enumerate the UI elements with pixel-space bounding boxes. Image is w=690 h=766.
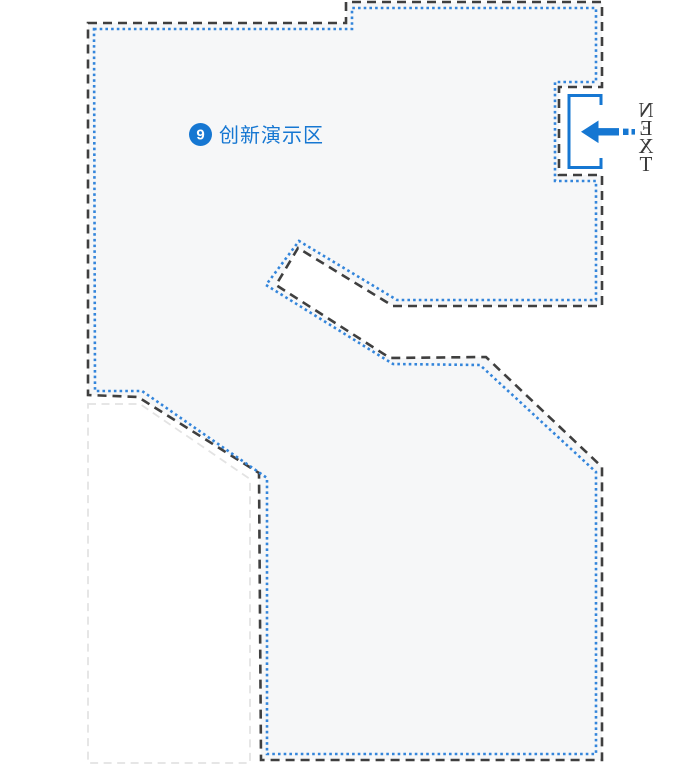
map-canvas: 9 创新演示区 N E X T — [0, 0, 690, 766]
badge-number: 9 — [196, 127, 204, 144]
arrow-tail-dash — [632, 129, 636, 135]
area-label: 创新演示区 — [219, 124, 324, 147]
floor-map: 9 创新演示区 N E X T — [0, 0, 690, 766]
next-letter: T — [639, 152, 652, 176]
next-text: N E X T — [638, 98, 653, 176]
next-arrow-icon — [581, 121, 635, 144]
arrow-tail-dash — [623, 129, 629, 135]
neighbor-area-outline — [88, 404, 250, 763]
arrow-head — [581, 121, 599, 144]
area-badge: 9 — [189, 123, 212, 146]
arrow-shaft — [598, 128, 619, 135]
